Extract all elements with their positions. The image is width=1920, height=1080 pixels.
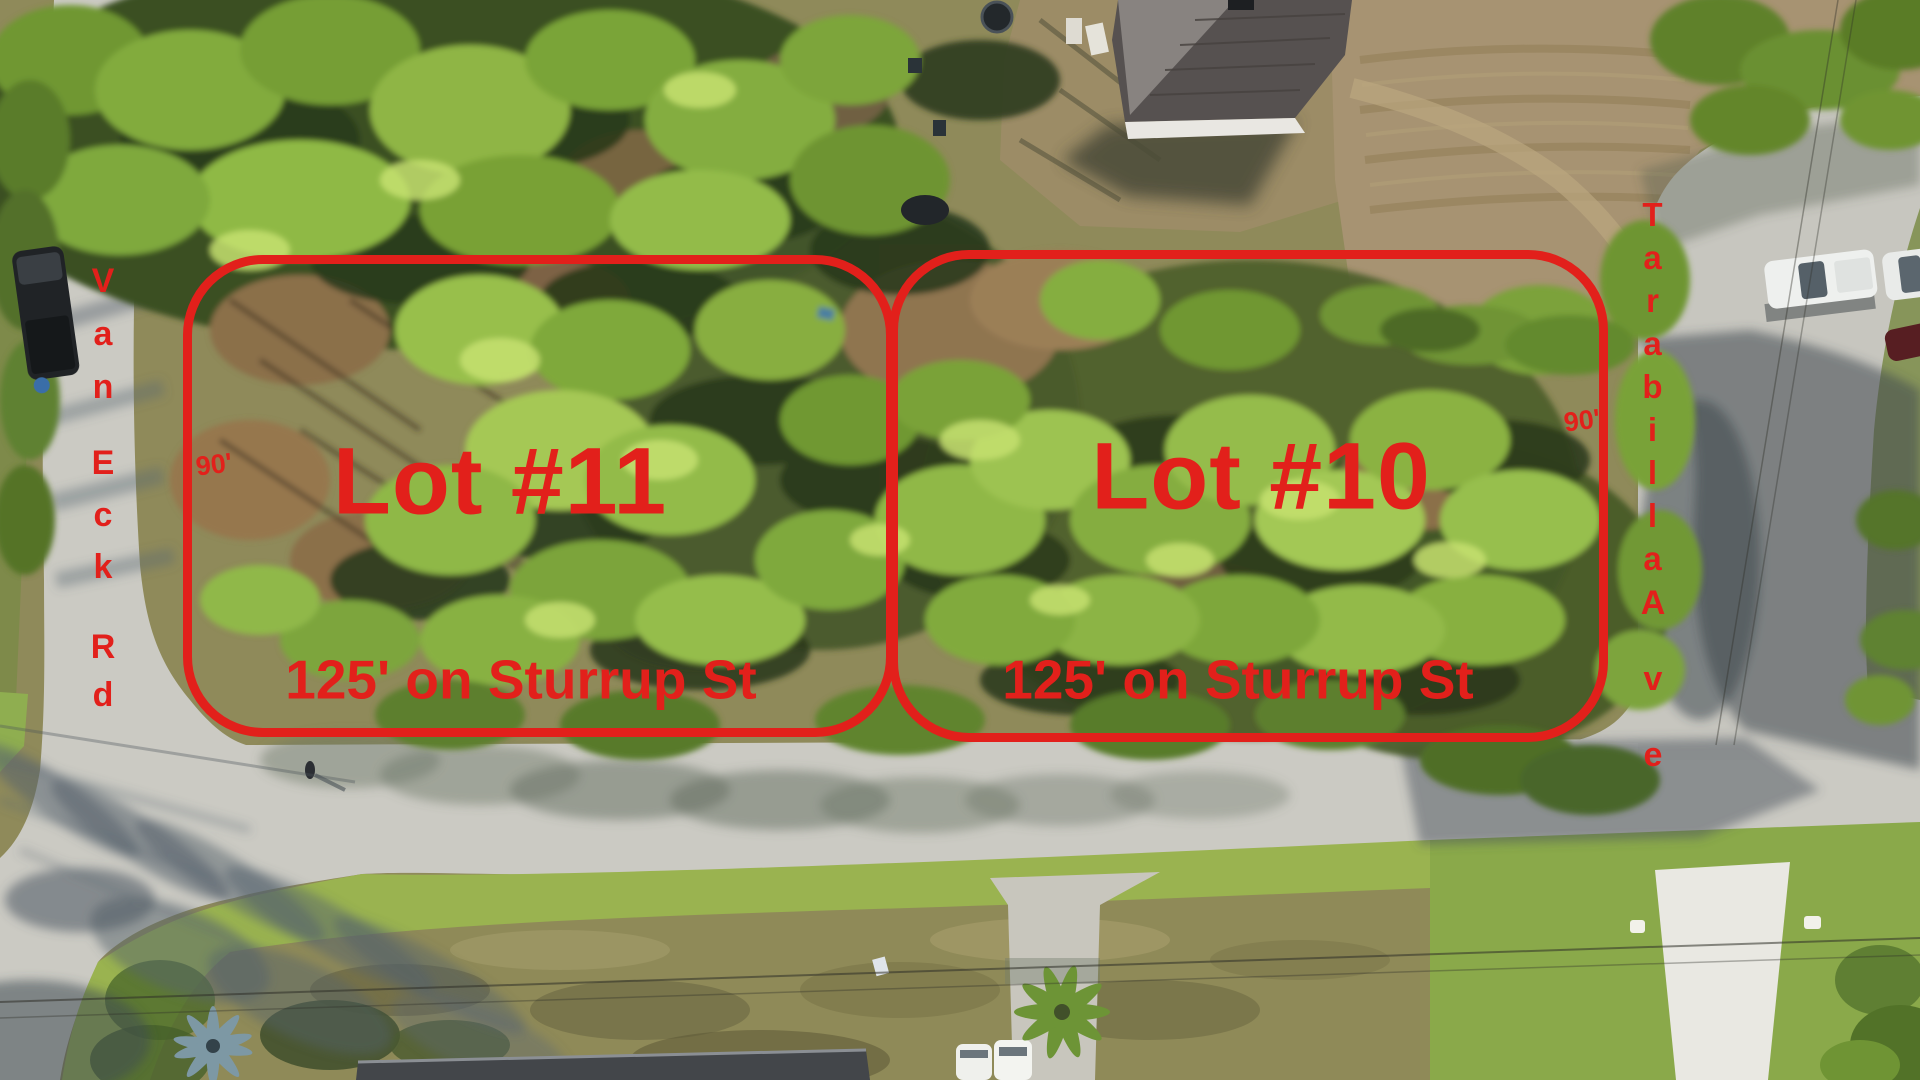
lot-11-depth-label: 90' xyxy=(194,449,233,480)
lot-10-frontage-label: 125' on Sturrup St xyxy=(1002,653,1473,708)
street-label-tarabilla: Tarabilla xyxy=(1636,196,1669,583)
lot-10-label: Lot #10 xyxy=(1091,430,1431,525)
lot-11-label: Lot #11 xyxy=(333,435,667,530)
street-label-eck: Eck xyxy=(86,444,120,600)
street-label-van: Van xyxy=(86,262,120,421)
street-label-rd: Rd xyxy=(86,628,120,724)
lot-11-frontage-label: 125' on Sturrup St xyxy=(285,653,756,708)
street-label-ave: Ave xyxy=(1636,584,1670,812)
lot-10-depth-label: 90' xyxy=(1562,405,1601,436)
aerial-lot-photo: Lot #11 Lot #10 125' on Sturrup St 125' … xyxy=(0,0,1920,1080)
listing-annotations: Lot #11 Lot #10 125' on Sturrup St 125' … xyxy=(0,0,1920,1080)
